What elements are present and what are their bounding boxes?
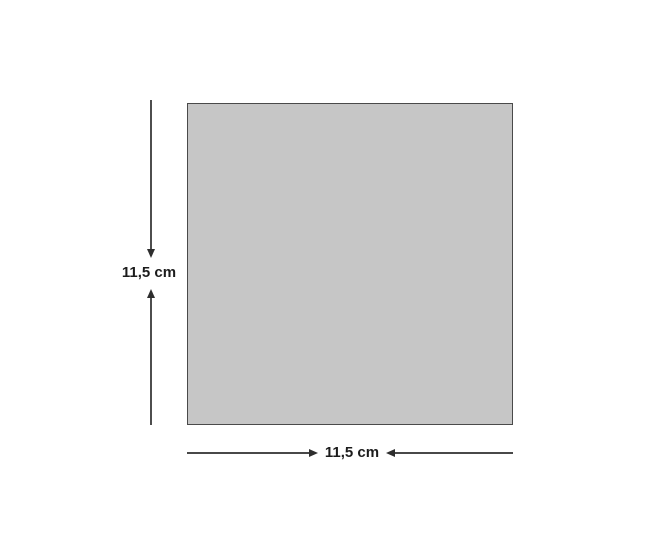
height-dimension: [147, 100, 155, 425]
diagram-canvas: 11,5 cm 11,5 cm: [0, 0, 670, 543]
arrow-down-icon: [147, 249, 155, 258]
height-dimension-label: 11,5 cm: [113, 264, 185, 282]
width-dimension-label: 11,5 cm: [316, 444, 388, 462]
